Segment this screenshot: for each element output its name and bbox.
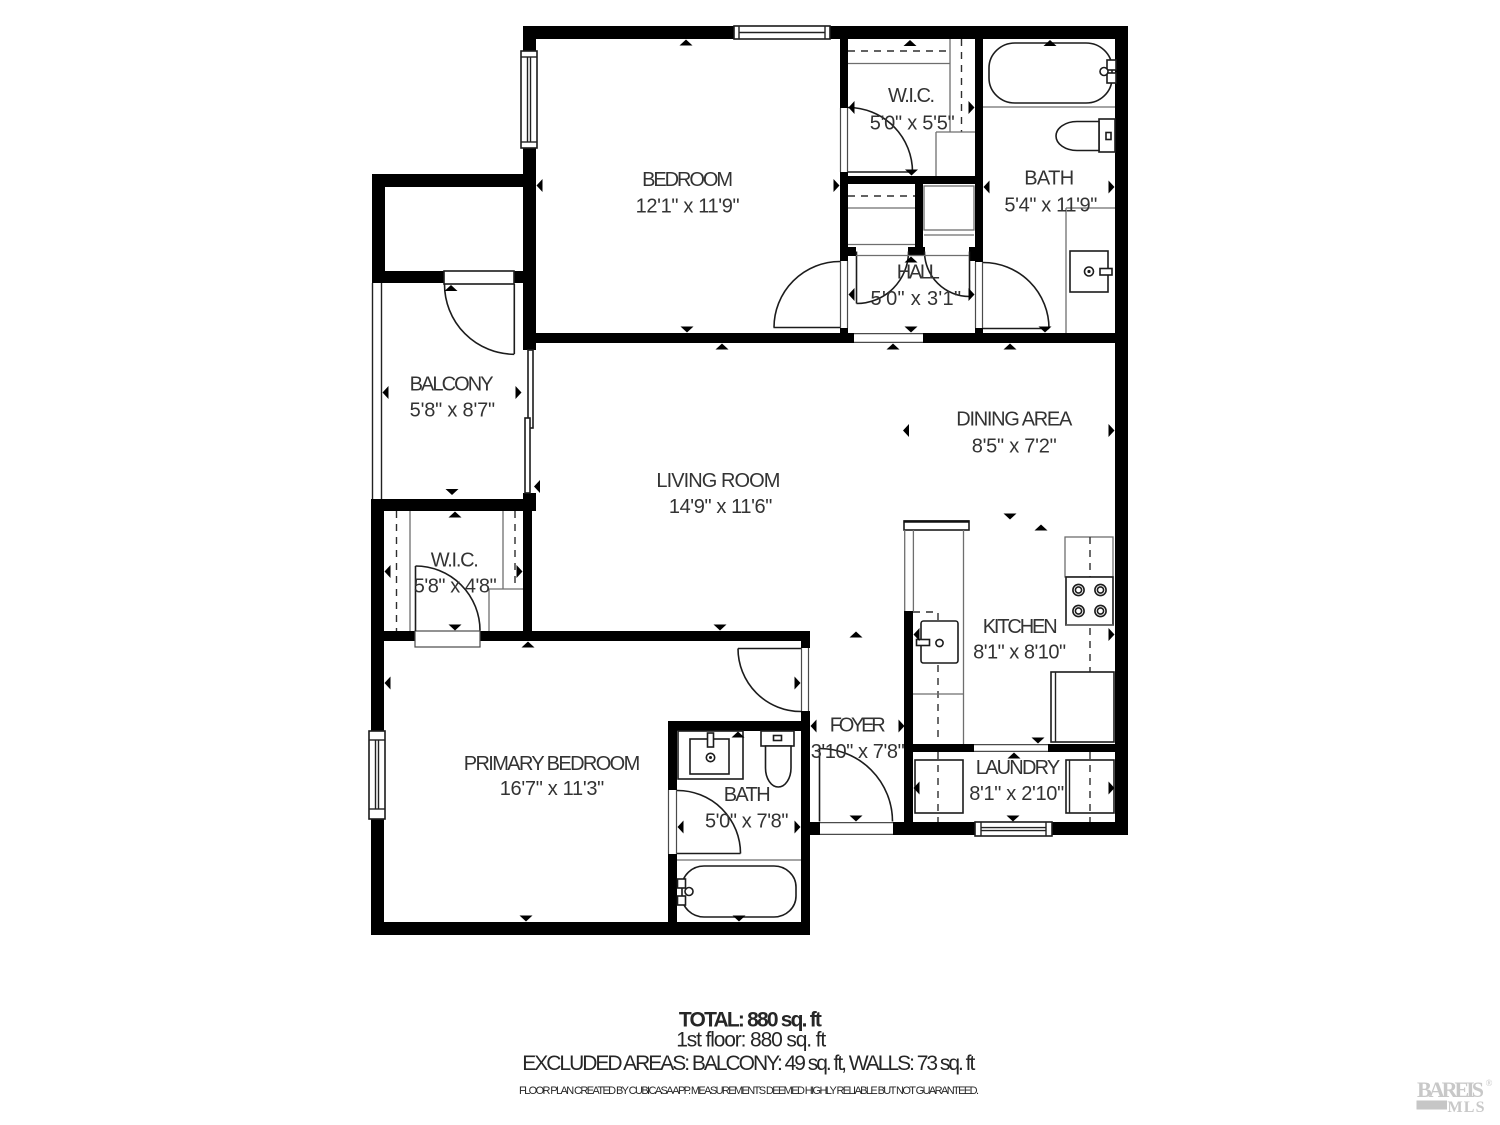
svg-text:LAUNDRY: LAUNDRY (976, 757, 1061, 779)
svg-text:5'0" x 7'8": 5'0" x 7'8" (705, 811, 789, 833)
svg-text:14'9" x 11'6": 14'9" x 11'6" (669, 496, 773, 518)
svg-text:W.I.C.: W.I.C. (431, 550, 479, 572)
svg-text:3'10" x 7'8": 3'10" x 7'8" (811, 741, 905, 763)
svg-text:FOYER: FOYER (830, 715, 886, 737)
svg-text:BEDROOM: BEDROOM (642, 169, 733, 191)
svg-text:8'1" x 8'10": 8'1" x 8'10" (973, 642, 1066, 664)
svg-text:LIVING ROOM: LIVING ROOM (656, 470, 780, 492)
svg-text:FLOOR PLAN CREATED BY CUBICASA: FLOOR PLAN CREATED BY CUBICASA APP. MEAS… (519, 1085, 979, 1097)
svg-text:HALL: HALL (897, 262, 940, 284)
svg-text:EXCLUDED AREAS: BALCONY: 49 sq: EXCLUDED AREAS: BALCONY: 49 sq. ft, WALL… (522, 1052, 975, 1075)
svg-text:5'0" x 3'1": 5'0" x 3'1" (871, 288, 962, 310)
svg-text:PRIMARY BEDROOM: PRIMARY BEDROOM (464, 753, 641, 775)
svg-text:5'0" x 5'5": 5'0" x 5'5" (870, 113, 955, 135)
svg-text:®: ® (1486, 1078, 1493, 1088)
svg-text:1st floor: 880 sq. ft: 1st floor: 880 sq. ft (676, 1029, 826, 1052)
svg-text:BATH: BATH (1024, 168, 1074, 190)
svg-text:DINING AREA: DINING AREA (956, 409, 1073, 431)
svg-text:8'5" x 7'2": 8'5" x 7'2" (972, 436, 1057, 458)
svg-text:5'8" x 8'7": 5'8" x 8'7" (410, 400, 496, 422)
svg-text:W.I.C.: W.I.C. (888, 85, 935, 107)
svg-text:MLS: MLS (1448, 1099, 1485, 1116)
svg-text:5'4" x 11'9": 5'4" x 11'9" (1004, 195, 1097, 217)
svg-text:BALCONY: BALCONY (410, 374, 494, 396)
svg-text:5'8" x 4'8": 5'8" x 4'8" (414, 576, 497, 598)
svg-text:KITCHEN: KITCHEN (983, 616, 1058, 638)
svg-text:16'7" x 11'3": 16'7" x 11'3" (500, 778, 605, 800)
svg-text:BATH: BATH (724, 784, 771, 806)
svg-text:8'1" x 2'10": 8'1" x 2'10" (969, 783, 1064, 805)
svg-text:12'1" x 11'9": 12'1" x 11'9" (636, 196, 740, 218)
